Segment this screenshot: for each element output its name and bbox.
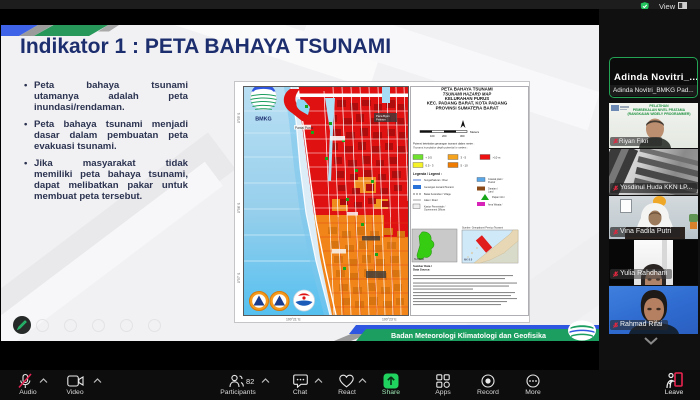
svg-text:100°21' E: 100°21' E xyxy=(286,318,301,322)
svg-text:Batas Kelurahan / Village: Batas Kelurahan / Village xyxy=(424,193,451,196)
svg-text:>10 m: >10 m xyxy=(493,156,502,160)
svg-text:300: 300 xyxy=(460,134,465,138)
svg-text:Data Source:: Data Source: xyxy=(413,268,430,272)
svg-text:Potensi ketebalan genangan tsu: Potensi ketebalan genangan tsunami dalam… xyxy=(413,142,475,146)
svg-text:Land: Land xyxy=(488,191,494,194)
svg-text:MK 8.9: MK 8.9 xyxy=(464,258,473,262)
svg-text:PROVINSI SUMATERA BARAT: PROVINSI SUMATERA BARAT xyxy=(436,105,499,110)
svg-text:Legenda / Legend :: Legenda / Legend : xyxy=(413,172,442,176)
svg-text:Sungai/Saluran : River: Sungai/Saluran : River xyxy=(424,179,448,182)
svg-text:Genangan tsunami/Tsunami: Genangan tsunami/Tsunami xyxy=(424,186,454,189)
svg-text:Tsunami inundation depth poten: Tsunami inundation depth potential in me… xyxy=(413,145,468,149)
svg-text:100: 100 xyxy=(430,134,435,138)
svg-text:SUMBAR: SUMBAR xyxy=(414,258,425,261)
svg-text:Pantai Purus: Pantai Purus xyxy=(295,126,314,130)
svg-text:0°56' S: 0°56' S xyxy=(237,203,241,213)
svg-text:0°57' S: 0°57' S xyxy=(237,273,241,283)
svg-text:Government Offices: Government Offices xyxy=(424,209,446,212)
svg-text:Meters: Meters xyxy=(470,130,480,134)
svg-text:Papan Info /: Papan Info / xyxy=(492,196,505,199)
svg-text:100°23' E: 100°23' E xyxy=(382,318,397,322)
svg-text:200: 200 xyxy=(442,134,447,138)
svg-text:< 0.5: < 0.5 xyxy=(426,156,433,160)
svg-text:3 - 5: 3 - 5 xyxy=(461,156,467,160)
svg-text:0.5 - 3: 0.5 - 3 xyxy=(426,164,434,168)
svg-text:Jalan / Road: Jalan / Road xyxy=(424,199,438,202)
svg-text:Prrkntrn: Prrkntrn xyxy=(376,118,386,122)
svg-text:Sumber: Gempabumi Pemicu Tsuna: Sumber: Gempabumi Pemicu Tsunami xyxy=(462,227,503,230)
svg-text:Area Wisata /: Area Wisata / xyxy=(488,204,503,207)
svg-text:5 - 10: 5 - 10 xyxy=(461,164,469,168)
svg-text:0°55' S: 0°55' S xyxy=(237,113,241,123)
svg-text:Pesisir: Pesisir xyxy=(488,181,495,184)
svg-text:BMKG: BMKG xyxy=(255,117,271,123)
